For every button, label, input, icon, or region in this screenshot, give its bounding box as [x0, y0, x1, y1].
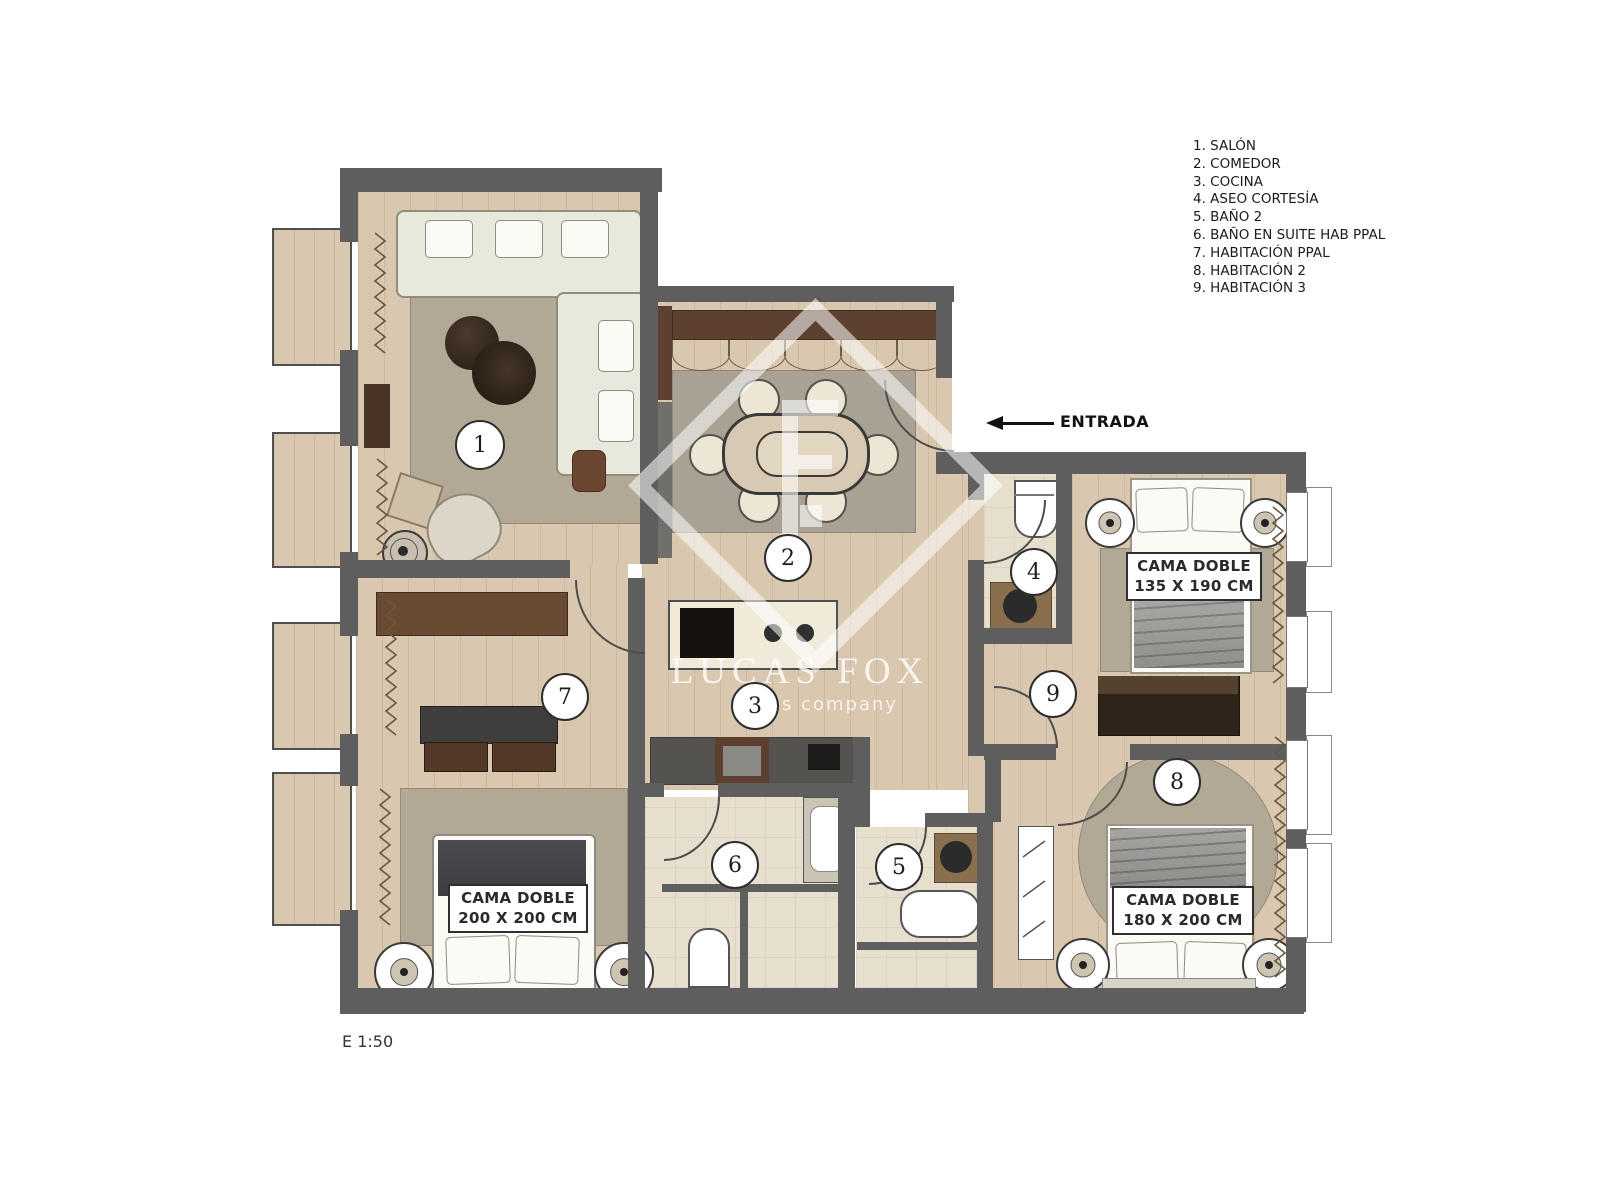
legend-item: 2. COMEDOR: [1193, 156, 1385, 174]
legend-item: 1. SALÓN: [1193, 138, 1385, 156]
bed-label-line: CAMA DOBLE: [1118, 891, 1248, 911]
wall-divider: [740, 884, 748, 988]
bed-hab3-pillow: [1191, 487, 1245, 533]
scale-label: E 1:50: [342, 1032, 393, 1051]
legend-item: 7. HABITACIÓN PPAL: [1193, 245, 1385, 263]
master-sideboard: [376, 592, 568, 636]
toilet-tank-line: [1014, 494, 1054, 496]
lucas-fox-monogram: [800, 505, 822, 527]
wall: [1286, 828, 1306, 848]
wall: [340, 168, 662, 192]
wall: [718, 783, 855, 797]
kitchen-appliance: [723, 746, 761, 776]
bench-hab3-top: [1098, 676, 1238, 694]
bed-label-line: 200 X 200 CM: [454, 909, 582, 929]
radiator-zigzag: [377, 786, 393, 932]
master-dresser-top: [420, 706, 558, 744]
wall-divider: [662, 884, 838, 892]
wall: [340, 350, 358, 446]
legend-item: 6. BAÑO EN SUITE HAB PPAL: [1193, 227, 1385, 245]
wall: [968, 644, 984, 756]
room-marker-hab3: 9: [1029, 670, 1077, 718]
wall: [936, 452, 1304, 474]
wall: [340, 168, 358, 242]
bed-hab3-blanket: [1134, 596, 1244, 668]
legend: 1. SALÓN 2. COMEDOR 3. COCINA 4. ASEO CO…: [1193, 138, 1385, 298]
radiator-zigzag: [372, 230, 388, 358]
bathtub: [900, 890, 980, 938]
room-marker-bano-suite: 6: [711, 841, 759, 889]
wall: [1286, 936, 1306, 1012]
lucas-fox-monogram: [798, 455, 832, 469]
window: [1286, 740, 1308, 830]
bed-label-line: 180 X 200 CM: [1118, 911, 1248, 931]
sofa-cushion: [495, 220, 543, 258]
ottoman: [572, 450, 606, 492]
window-sill: [1306, 487, 1332, 567]
wall: [936, 302, 952, 378]
room-marker-hab2: 8: [1153, 758, 1201, 806]
room-marker-aseo: 4: [1010, 548, 1058, 596]
legend-item: 3. COCINA: [1193, 174, 1385, 192]
washbasin-bath2: [940, 841, 972, 873]
wall: [1286, 452, 1306, 492]
room-marker-salon: 1: [455, 420, 505, 470]
master-dresser-drawer: [492, 742, 556, 772]
sofa-cushion: [561, 220, 609, 258]
window: [1286, 848, 1308, 938]
toilet: [688, 928, 730, 988]
wall: [925, 813, 985, 827]
wall-divider: [857, 942, 977, 950]
bed-label-hab-ppal: CAMA DOBLE 200 X 200 CM: [448, 884, 588, 933]
room-marker-bano2: 5: [875, 843, 923, 891]
window-sill: [1306, 735, 1332, 835]
closet-hang-icon: [1019, 827, 1049, 955]
floorplan-page: LUCAS FOX lls company 1 2 3 4 5 6 7 8 9 …: [0, 0, 1600, 1200]
floor-lamp-dot: [398, 546, 408, 556]
legend-item: 5. BAÑO 2: [1193, 209, 1385, 227]
bay-window-1: [272, 228, 352, 366]
wall: [1286, 686, 1306, 740]
sofa-cushion: [598, 390, 634, 442]
bed-label-line: 135 X 190 CM: [1132, 577, 1256, 597]
window: [1286, 492, 1308, 562]
bay-window-3: [272, 622, 352, 750]
sofa-cushion: [598, 320, 634, 372]
coffee-table: [472, 341, 536, 405]
radiator-zigzag: [1270, 504, 1286, 690]
bed-hab2-blanket: [1110, 828, 1246, 888]
wall: [1056, 474, 1072, 628]
legend-item: 4. ASEO CORTESÍA: [1193, 191, 1385, 209]
radiator-zigzag: [1272, 734, 1288, 986]
room-marker-hab-ppal: 7: [541, 673, 589, 721]
entrance-arrow-line: [1002, 422, 1054, 425]
bed-label-hab2: CAMA DOBLE 180 X 200 CM: [1112, 886, 1254, 935]
bed-label-line: CAMA DOBLE: [1132, 557, 1256, 577]
bed-label-line: CAMA DOBLE: [454, 889, 582, 909]
lucas-fox-monogram: [798, 400, 838, 416]
radiator-zigzag: [383, 596, 399, 742]
room-marker-comedor: 2: [764, 534, 812, 582]
bed-master-pillow: [514, 935, 580, 985]
window-sill: [1306, 611, 1332, 693]
wall: [977, 813, 993, 1012]
wall-bottom: [340, 988, 1304, 1014]
console-table: [364, 384, 390, 448]
window-sill: [1306, 843, 1332, 943]
watermark-subtitle: lls company: [768, 694, 898, 715]
nightstand: [1085, 498, 1135, 548]
bed-master-pillow: [445, 935, 511, 985]
wall: [985, 756, 1001, 822]
room-marker-cocina: 3: [731, 682, 779, 730]
window: [1286, 616, 1308, 688]
wall: [853, 813, 869, 827]
wall: [642, 286, 954, 302]
wall: [1286, 560, 1306, 616]
wall: [645, 783, 664, 797]
wall: [968, 628, 1072, 644]
wall: [356, 560, 570, 578]
bed-label-hab3: CAMA DOBLE 135 X 190 CM: [1126, 552, 1262, 601]
legend-item: 9. HABITACIÓN 3: [1193, 280, 1385, 298]
tall-cabinet-brown: [658, 306, 672, 400]
legend-item: 8. HABITACIÓN 2: [1193, 263, 1385, 281]
entrance-arrow-icon: [986, 416, 1003, 430]
entrance-label: ENTRADA: [1060, 412, 1149, 431]
master-dresser-drawer: [424, 742, 488, 772]
curtain-swag: [672, 338, 730, 371]
wall: [340, 734, 358, 786]
bay-window-4: [272, 772, 352, 926]
kitchen-counter-sink: [808, 744, 840, 770]
lucas-fox-monogram: [782, 400, 798, 540]
watermark-title: LUCAS FOX: [648, 650, 952, 693]
sofa-cushion: [425, 220, 473, 258]
bay-window-2: [272, 432, 352, 568]
bed-hab3-pillow: [1135, 487, 1189, 533]
closet-hab2: [1018, 826, 1054, 960]
radiator-zigzag: [374, 456, 390, 562]
